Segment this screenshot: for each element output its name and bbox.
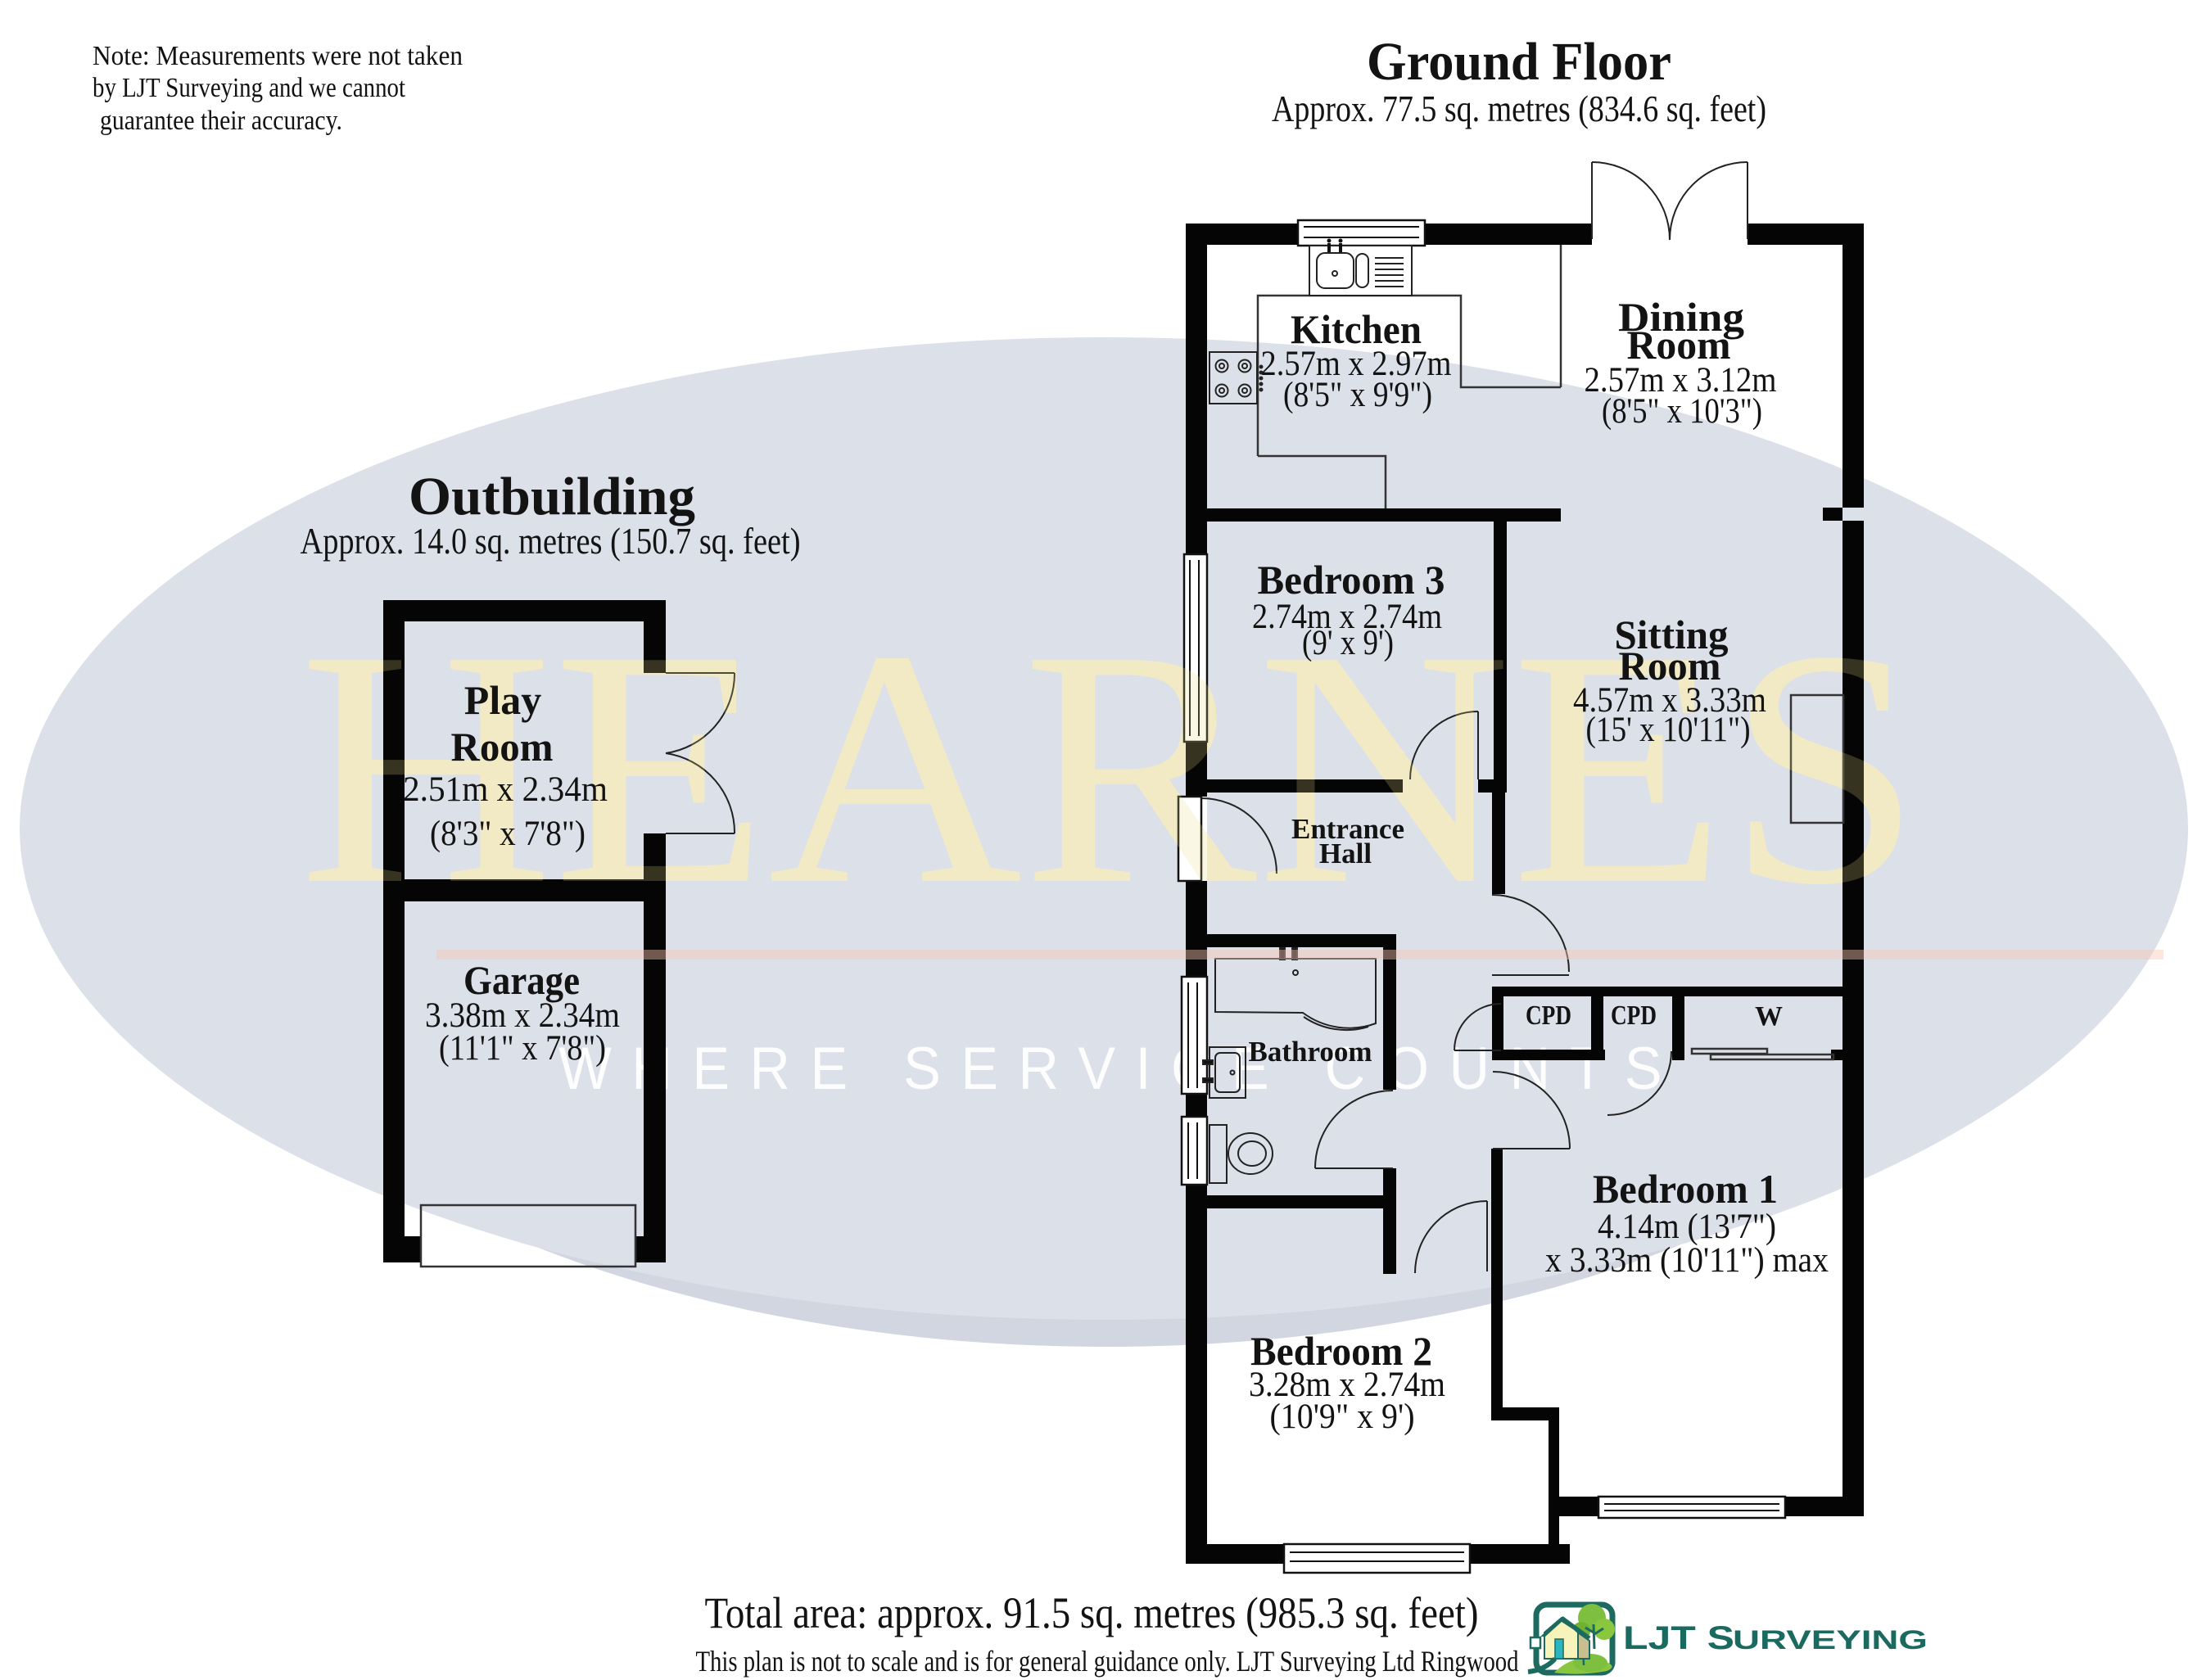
svg-text:2.51m x 2.34m: 2.51m x 2.34m <box>403 770 608 809</box>
svg-text:Ground Floor: Ground Floor <box>1367 32 1671 92</box>
svg-text:guarantee their accuracy.: guarantee their accuracy. <box>100 106 342 136</box>
svg-text:Play: Play <box>464 677 541 723</box>
svg-text:W: W <box>1755 1001 1783 1032</box>
svg-text:x 3.33m (10'11") max: x 3.33m (10'11") max <box>1545 1241 1829 1280</box>
svg-text:Outbuilding: Outbuilding <box>409 467 695 526</box>
svg-text:(11'1" x 7'8"): (11'1" x 7'8") <box>439 1029 606 1068</box>
svg-text:Bedroom 1: Bedroom 1 <box>1593 1166 1778 1212</box>
svg-text:(8'5" x 10'3"): (8'5" x 10'3") <box>1602 392 1762 431</box>
svg-text:Total area: approx. 91.5 sq. m: Total area: approx. 91.5 sq. metres (985… <box>705 1588 1479 1637</box>
svg-text:CPD: CPD <box>1526 1000 1571 1031</box>
svg-text:Approx. 14.0 sq. metres (150.7: Approx. 14.0 sq. metres (150.7 sq. feet) <box>301 520 801 562</box>
svg-text:(9' x 9'): (9' x 9') <box>1302 624 1394 662</box>
svg-text:Bathroom: Bathroom <box>1248 1036 1372 1068</box>
svg-text:WHERE SERVICE COUNTS: WHERE SERVICE COUNTS <box>558 1036 1682 1102</box>
svg-text:CPD: CPD <box>1611 1000 1657 1031</box>
svg-text:4.14m (13'7"): 4.14m (13'7") <box>1598 1208 1776 1246</box>
svg-text:by LJT Surveying and we cannot: by LJT Surveying and we cannot <box>93 73 405 103</box>
svg-text:(8'5" x 9'9"): (8'5" x 9'9") <box>1283 376 1432 414</box>
svg-text:(10'9" x 9'): (10'9" x 9') <box>1270 1398 1415 1436</box>
svg-text:Room: Room <box>451 724 554 770</box>
svg-text:This plan is not to scale and: This plan is not to scale and is for gen… <box>696 1645 1519 1678</box>
svg-text:Approx. 77.5 sq. metres (834.6: Approx. 77.5 sq. metres (834.6 sq. feet) <box>1272 88 1766 129</box>
svg-text:(15' x 10'11"): (15' x 10'11") <box>1586 711 1751 749</box>
svg-text:URVEYING: URVEYING <box>1733 1625 1928 1655</box>
svg-text:Note: Measurements were not ta: Note: Measurements were not taken <box>93 41 463 71</box>
svg-text:Bedroom 3: Bedroom 3 <box>1258 557 1445 603</box>
svg-text:(8'3" x 7'8"): (8'3" x 7'8") <box>430 815 586 853</box>
svg-text:LJT S: LJT S <box>1623 1620 1734 1656</box>
svg-text:Hall: Hall <box>1319 838 1372 869</box>
